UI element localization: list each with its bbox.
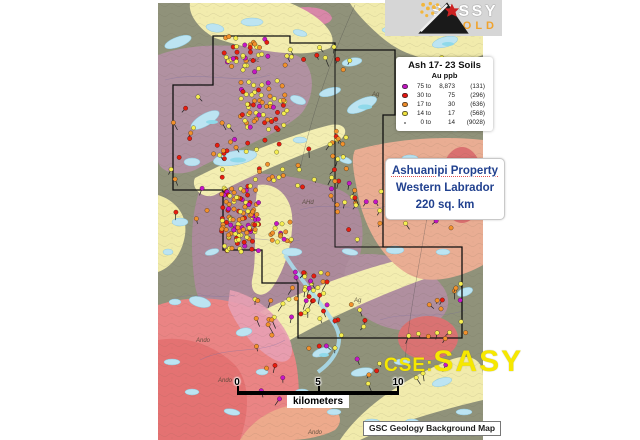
geology-map: AndoAndoAndoAHdAgAHcAg SASSY GOL	[158, 3, 483, 440]
legend-swatch-background	[404, 122, 406, 124]
property-region: Western Labrador	[386, 180, 504, 197]
legend-swatch-magenta	[402, 84, 408, 90]
legend-row: 17 to 30 (636)	[400, 100, 489, 109]
svg-text:Ando: Ando	[307, 430, 323, 436]
scale-unit-label: kilometers	[287, 395, 349, 408]
legend-swatch-yellow	[402, 111, 408, 117]
ticker-exchange: CSE:	[384, 355, 433, 377]
page: AndoAndoAndoAHdAgAHcAg SASSY GOL	[0, 0, 640, 440]
ticker-symbol: SASY	[433, 345, 523, 379]
legend-row: 30 to 75 (296)	[400, 91, 489, 100]
soils-legend: Ash 17- 23 Soils Au ppb 75 to 8,873 (131…	[396, 57, 493, 131]
legend-swatch-orange	[402, 102, 408, 108]
scale-bar: 0 5 10 kilometers	[218, 375, 418, 415]
property-label: Ashuanipi Property Western Labrador 220 …	[385, 158, 505, 220]
svg-text:Ando: Ando	[195, 338, 211, 344]
legend-row: 75 to 8,873 (131)	[400, 82, 489, 91]
svg-text:Ag: Ag	[371, 92, 380, 98]
map-attribution: GSC Geology Background Map	[363, 421, 501, 436]
legend-subtitle: Au ppb	[400, 71, 489, 80]
stock-ticker: CSE: SASY	[384, 345, 523, 379]
legend-swatch-red	[402, 93, 408, 99]
svg-text:AHd: AHd	[301, 200, 314, 206]
company-logo: SASSY GOLD	[385, 0, 502, 36]
scale-bar-line	[237, 391, 398, 395]
legend-row: 14 to 17 (568)	[400, 109, 489, 118]
svg-text:Ag: Ag	[353, 298, 362, 304]
property-area: 220 sq. km	[386, 197, 504, 214]
legend-row: 0 to 14 (9028)	[400, 118, 489, 127]
property-name: Ashuanipi Property	[386, 163, 504, 180]
logo-mountain-icon	[385, 0, 502, 36]
legend-title: Ash 17- 23 Soils	[400, 60, 489, 71]
